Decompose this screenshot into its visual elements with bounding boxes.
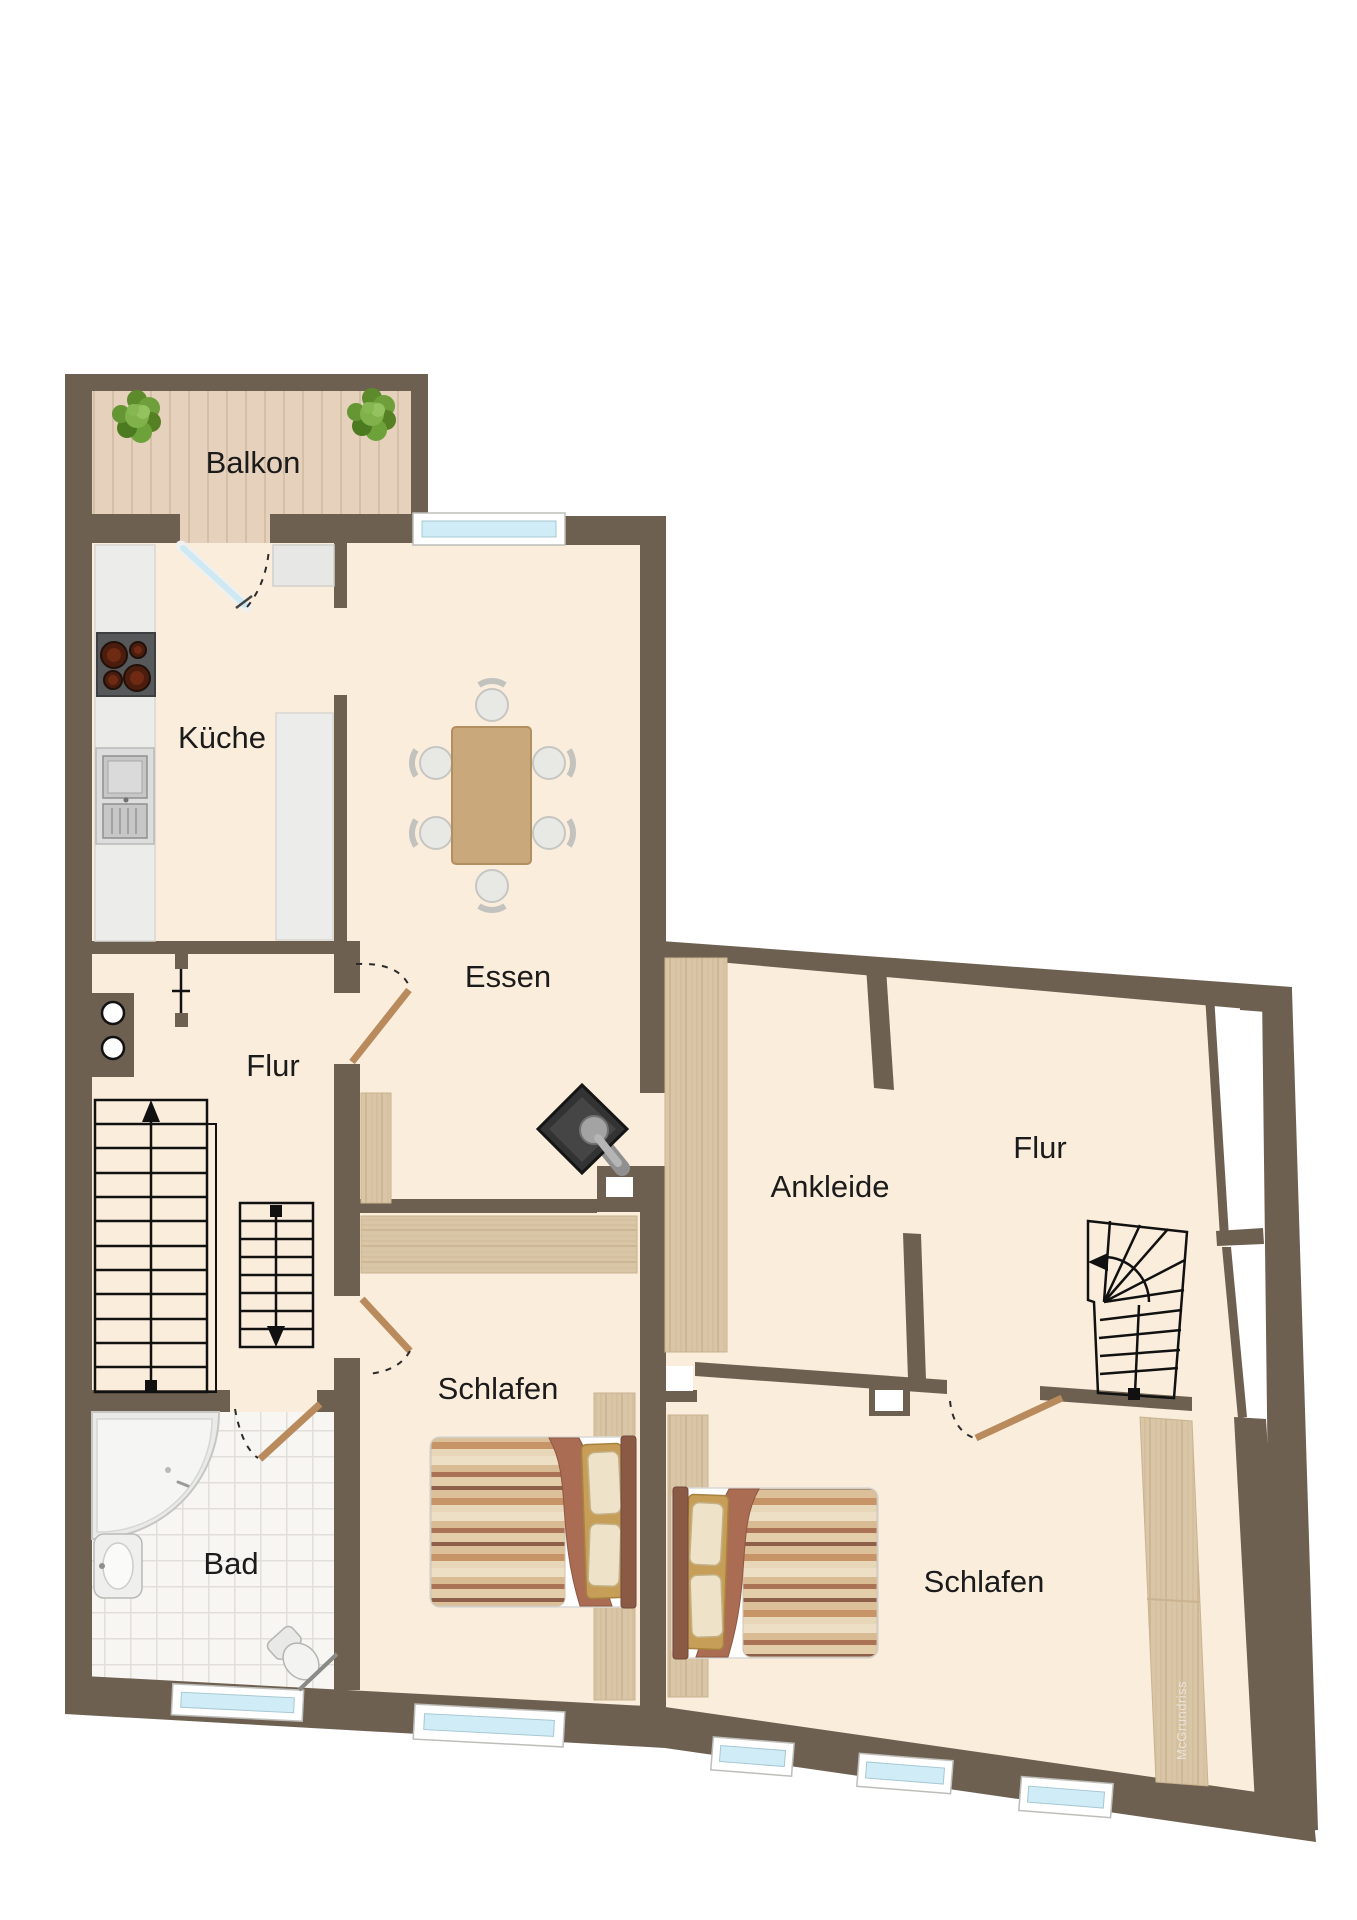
window-icon [413, 1704, 565, 1747]
watermark-text: McGrundriss [1174, 1681, 1189, 1760]
bad-east-wall [334, 1390, 360, 1690]
north-wall-mid [270, 514, 417, 543]
kitchen-counter [95, 545, 155, 941]
kitchen-essen-wall-b [334, 695, 347, 943]
floor-plan-page: Balkon Küche Essen Flur Ankleide Flur Sc… [0, 0, 1357, 1920]
room-label-kueche: Küche [178, 720, 266, 755]
room-label-schlafen1: Schlafen [438, 1371, 559, 1406]
washbasin-icon [94, 1534, 142, 1598]
room-label-flur: Flur [246, 1048, 299, 1083]
kitchen-flur-wall [92, 941, 338, 954]
room-label-essen: Essen [465, 959, 551, 994]
kitchen-tall-cabinet [276, 713, 333, 940]
wall-pipe-icon [102, 1002, 124, 1024]
bed-icon [430, 1436, 636, 1608]
stove-icon [97, 633, 155, 696]
window-icon [857, 1753, 953, 1793]
room-label-flur2: Flur [1013, 1130, 1066, 1165]
wall-pipe-icon [102, 1037, 124, 1059]
essen-right-wall [640, 543, 666, 1093]
window-icon [413, 513, 565, 545]
north-wall-right [560, 516, 666, 545]
floor-plan-canvas: Balkon Küche Essen Flur Ankleide Flur Sc… [0, 0, 1357, 1920]
room-label-schlafen2: Schlafen [924, 1564, 1045, 1599]
kitchen-cabinet [273, 545, 334, 586]
shaft-icon [875, 1390, 903, 1411]
kitchen-essen-wall-a [334, 543, 347, 608]
wardrobe-icon [361, 1216, 637, 1273]
wardrobe-icon [361, 1093, 391, 1203]
window-icon [711, 1737, 794, 1776]
window-icon [171, 1684, 303, 1721]
corner-shaft-border [663, 1390, 697, 1402]
wardrobe-icon [665, 958, 727, 1352]
flur-essen-wall-b [334, 1064, 360, 1296]
door-stub-b [175, 1013, 188, 1027]
bad-north-wall [92, 1390, 230, 1412]
flur-essen-wall-a [334, 941, 360, 993]
room-label-ankleide: Ankleide [771, 1169, 890, 1204]
shaft-icon [666, 1366, 693, 1391]
room-label-balkon: Balkon [206, 445, 301, 480]
door-stub-a [175, 954, 188, 969]
bed-icon [672, 1487, 878, 1659]
window-icon [1019, 1777, 1113, 1818]
west-outer-wall [65, 541, 92, 1681]
north-wall-left [65, 514, 180, 543]
sink-icon [96, 748, 154, 844]
balcony-right-wall [411, 374, 428, 517]
schlafen-divider-wall [640, 1166, 666, 1734]
shaft-icon [606, 1177, 633, 1197]
east-niche-divider [1216, 1228, 1264, 1246]
room-label-bad: Bad [203, 1546, 258, 1581]
